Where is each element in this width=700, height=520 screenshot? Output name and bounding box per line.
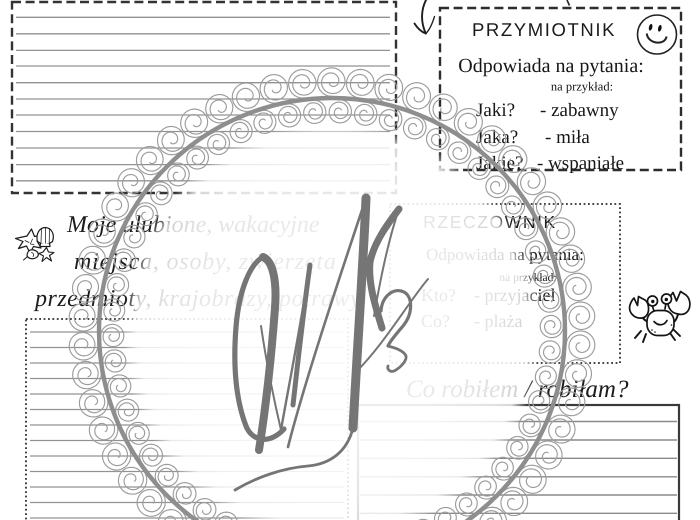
svg-text:PRZYMIOTNIK: PRZYMIOTNIK	[472, 19, 616, 40]
svg-text:na przykład:: na przykład:	[551, 80, 613, 94]
svg-text:- zabawny: - zabawny	[540, 100, 619, 121]
svg-text:- miła: - miła	[545, 127, 590, 148]
svg-text:Odpowiada na pytania:: Odpowiada na pytania:	[458, 55, 644, 77]
svg-text:- wspaniałe: - wspaniałe	[537, 153, 624, 174]
